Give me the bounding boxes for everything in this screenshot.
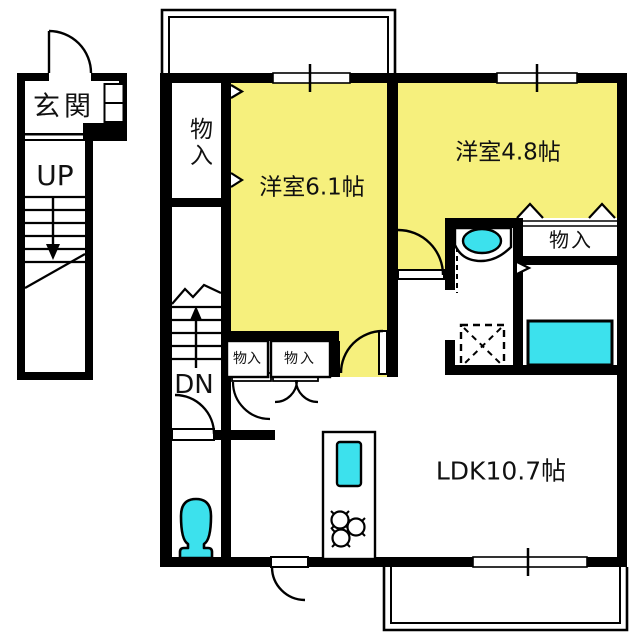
kitchen-sink-icon: [337, 442, 361, 486]
balcony-bottom-inner-rail: [391, 567, 620, 623]
western-room-4-8-label: 洋室4.8帖: [455, 142, 561, 165]
exterior-stair-structure: [17, 31, 127, 380]
door-leaf: [379, 331, 387, 374]
wall-segment: [85, 141, 93, 380]
burner: [333, 530, 350, 547]
balcony-bottom-outer-rail: [384, 567, 627, 630]
closet-top-left-label: 物入: [187, 117, 210, 169]
door-arc: [233, 382, 270, 419]
wall-segment: [513, 218, 523, 375]
floorplan-canvas: 玄関 UP 物入 洋室6.1帖 洋室4.8帖 物入 物入 物入 DN LDK10…: [0, 0, 639, 640]
balcony-bottom: [384, 567, 627, 630]
wall-segment: [17, 73, 25, 380]
stairs-up-label: UP: [36, 162, 73, 190]
balcony-top-inner-rail: [169, 17, 388, 77]
door-leaf: [172, 429, 214, 440]
western-room-6-1-floor: [231, 83, 387, 331]
entrance-label: 玄関: [33, 94, 95, 121]
wall-segment: [83, 123, 127, 141]
western-room-6-1-label: 洋室6.1帖: [259, 177, 365, 200]
stairs-up: [25, 197, 85, 288]
floorplan-drawing: [0, 0, 639, 640]
ldk-label: LDK10.7帖: [436, 459, 566, 484]
stairs-down: [172, 285, 221, 368]
wall-segment: [172, 198, 231, 207]
toilet-icon: [180, 499, 212, 558]
wall-segment: [513, 256, 617, 265]
washing-machine-space-icon: [461, 325, 504, 367]
burner: [348, 519, 365, 536]
bathtub-icon: [528, 321, 612, 365]
wall-segment: [387, 83, 398, 377]
window-north-1: [273, 73, 350, 83]
wall-east: [617, 73, 627, 567]
closet-hall-1-label: 物入: [233, 352, 261, 366]
door-arc: [296, 380, 318, 402]
entrance-threshold: [25, 136, 83, 140]
closet-right-label: 物入: [549, 230, 593, 250]
door-arc: [275, 380, 297, 402]
washer-space-diagonal: [464, 328, 501, 364]
up-arrow-head: [46, 244, 60, 260]
wall-segment: [221, 83, 231, 557]
window-south: [473, 557, 587, 567]
wall-west: [160, 73, 172, 567]
door-arc: [272, 567, 305, 600]
wall-segment: [221, 331, 339, 341]
closet-hall-2-label: 物入: [284, 352, 316, 366]
kitchen-unit: [323, 432, 375, 559]
wall-segment: [445, 218, 523, 228]
stair-break-line: [172, 285, 221, 304]
burner: [332, 512, 349, 529]
door-arc: [49, 31, 91, 73]
door-leaf: [271, 557, 308, 567]
entrance-door-swing-icon: [49, 31, 91, 73]
balcony-top-outer-rail: [162, 10, 395, 77]
wall-segment: [17, 372, 93, 380]
shoe-cabinet: [105, 84, 124, 122]
washbasin-icon: [463, 229, 501, 253]
wall-segment: [331, 341, 340, 377]
wall-segment: [215, 430, 275, 440]
balcony-top: [162, 10, 395, 77]
stair-diagonal: [25, 254, 85, 288]
stairs-down-label: DN: [174, 372, 213, 398]
door-leaf: [398, 270, 444, 279]
